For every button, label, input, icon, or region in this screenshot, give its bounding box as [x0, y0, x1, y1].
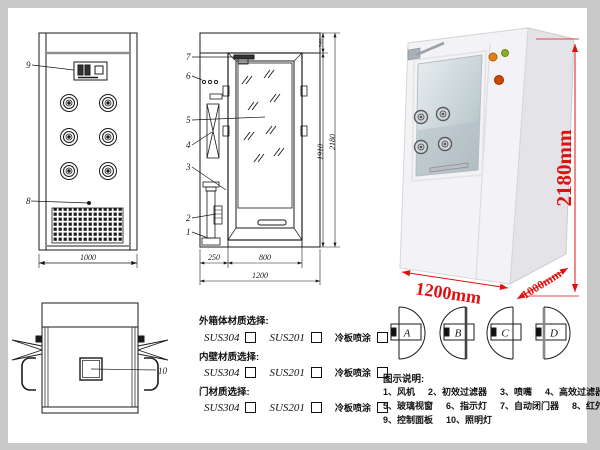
option-coldplate: 冷板喷涂 [335, 331, 371, 344]
checkbox-inner-sus201[interactable] [311, 367, 322, 378]
legend-title: 图示说明: [383, 371, 424, 385]
door-option-c-label: C [501, 328, 509, 340]
dim-2180: 2180 [328, 134, 337, 150]
legend-row-2: 5、玻璃视窗 6、指示灯 7、自动闭门器 8、红外线感应器 [383, 399, 600, 412]
door-handle-drawing [258, 220, 286, 225]
legend-item-7: 7、自动闭门器 [500, 399, 559, 412]
photo-dim-height: 2180mm [552, 129, 576, 206]
checkbox-inner-sus304[interactable] [245, 367, 256, 378]
checkbox-door-sus304[interactable] [245, 402, 256, 413]
callout-2: 2 [186, 213, 191, 223]
option-sus201: SUS201 [269, 367, 304, 379]
checkbox-outer-coldplate[interactable] [377, 332, 388, 343]
dim-1910: 1910 [316, 144, 325, 160]
indicator-lights-drawing [202, 80, 217, 83]
callout-6: 6 [186, 71, 191, 81]
legend-item-3: 3、喷嘴 [500, 385, 532, 398]
product-photo: 2180mm 1200mm 1000mm [386, 8, 588, 303]
door-option-c[interactable]: C [488, 304, 524, 362]
materials-row-outer: SUS304 SUS201 冷板喷涂 [204, 331, 401, 344]
callout-5: 5 [186, 115, 191, 125]
legend-item-10: 10、照明灯 [446, 413, 492, 426]
materials-title-door: 门材质选择: [199, 384, 250, 398]
door-option-a-label: A [403, 328, 411, 340]
dim-250: 250 [208, 253, 220, 262]
legend-row-1: 1、风机 2、初效过滤器 3、喷嘴 4、高效过滤器 [383, 385, 600, 398]
option-sus304: SUS304 [204, 367, 239, 379]
checkbox-outer-sus304[interactable] [245, 332, 256, 343]
option-coldplate: 冷板喷涂 [335, 366, 371, 379]
door-option-a[interactable]: A [388, 304, 424, 362]
legend-item-2: 2、初效过滤器 [428, 385, 487, 398]
legend-item-4: 4、高效过滤器 [545, 385, 600, 398]
option-sus201: SUS201 [269, 332, 304, 344]
checkbox-door-sus201[interactable] [311, 402, 322, 413]
option-sus201: SUS201 [269, 402, 304, 414]
materials-title-outer: 外箱体材质选择: [199, 313, 269, 327]
top-view-drawing: 10 [8, 296, 193, 424]
callout-9: 9 [26, 60, 31, 70]
orange-indicator-light [489, 53, 497, 61]
door-option-b[interactable]: B [441, 304, 477, 362]
dim-800: 800 [259, 253, 271, 262]
glass-hatching [242, 70, 284, 162]
legend-item-6: 6、指示灯 [446, 399, 487, 412]
callout-10: 10 [158, 366, 168, 376]
materials-title-inner: 内壁材质选择: [199, 349, 259, 363]
door-closer-drawing [234, 55, 254, 59]
legend-item-9: 9、控制面板 [383, 413, 433, 426]
door-glass [238, 63, 292, 208]
legend-item-5: 5、玻璃视窗 [383, 399, 433, 412]
callout-7: 7 [186, 52, 191, 62]
door-option-b-label: B [455, 328, 462, 340]
air-return-grille [52, 208, 123, 243]
spec-sheet: 9 8 1000 [0, 0, 600, 450]
red-button [495, 76, 504, 85]
materials-row-inner: SUS304 SUS201 冷板喷涂 [204, 366, 401, 379]
legend-item-1: 1、风机 [383, 385, 415, 398]
door-swing-wings [12, 340, 168, 360]
legend-item-8: 8、红外线感应器 [572, 399, 600, 412]
option-sus304: SUS304 [204, 402, 239, 414]
door-frame [228, 53, 302, 240]
materials-row-door: SUS304 SUS201 冷板喷涂 [204, 401, 401, 414]
option-coldplate: 冷板喷涂 [335, 401, 371, 414]
green-indicator-light [502, 50, 509, 57]
dim-1200: 1200 [252, 271, 268, 280]
callout-1: 1 [186, 227, 191, 237]
legend-row-3: 9、控制面板 10、照明灯 [383, 413, 505, 426]
callout-4: 4 [186, 140, 191, 150]
checkbox-outer-sus201[interactable] [311, 332, 322, 343]
side-view-drawing: 7 6 5 4 3 2 1 260 1910 2180 250 800 1200 [180, 22, 350, 290]
dim-260: 260 [319, 39, 325, 48]
option-sus304: SUS304 [204, 332, 239, 344]
nozzles-front [61, 95, 117, 180]
door-option-d[interactable]: D [533, 304, 569, 362]
front-view-drawing: 9 8 1000 [18, 22, 178, 274]
callout-3: 3 [185, 162, 191, 172]
dim-1000: 1000 [80, 253, 96, 262]
door-option-d-label: D [549, 328, 558, 340]
callout-8: 8 [26, 196, 31, 206]
